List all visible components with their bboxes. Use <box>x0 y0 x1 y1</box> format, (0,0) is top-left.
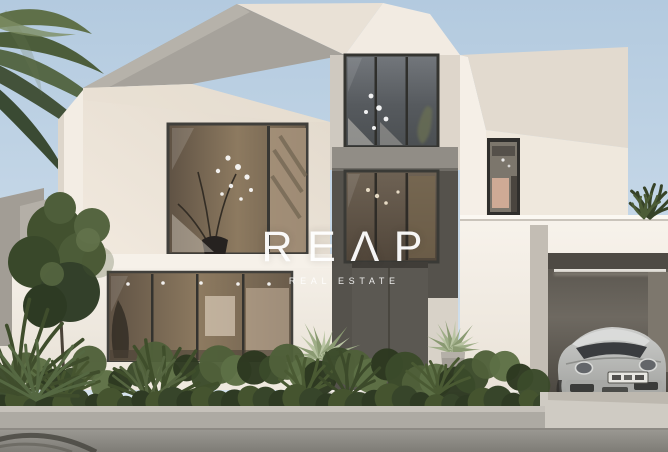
gallery-window <box>487 138 520 216</box>
curb-top <box>0 406 545 412</box>
listing-photo: REΛP REAL ESTATE <box>0 0 668 452</box>
entrance-tower <box>330 55 460 398</box>
tower-lower-glazing <box>345 171 438 262</box>
road <box>0 428 668 452</box>
car-headlight-left <box>576 362 593 374</box>
upper-lounge-window <box>168 124 307 258</box>
right-volume <box>460 47 628 216</box>
car-headlight-right <box>640 359 657 371</box>
tower-upper-glazing <box>345 55 438 147</box>
garage-ceiling-light <box>554 269 666 272</box>
floor-band <box>332 147 458 171</box>
door-header-shadow <box>352 262 428 268</box>
villa-scene <box>0 0 668 452</box>
license-plate <box>608 372 648 383</box>
curb-face <box>0 412 545 428</box>
